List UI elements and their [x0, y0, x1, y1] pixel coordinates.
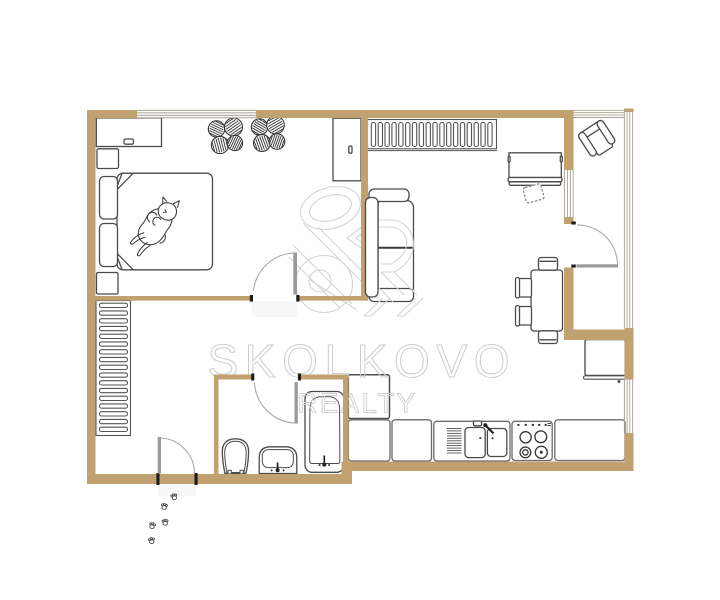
svg-text:REALTY: REALTY: [298, 388, 416, 419]
